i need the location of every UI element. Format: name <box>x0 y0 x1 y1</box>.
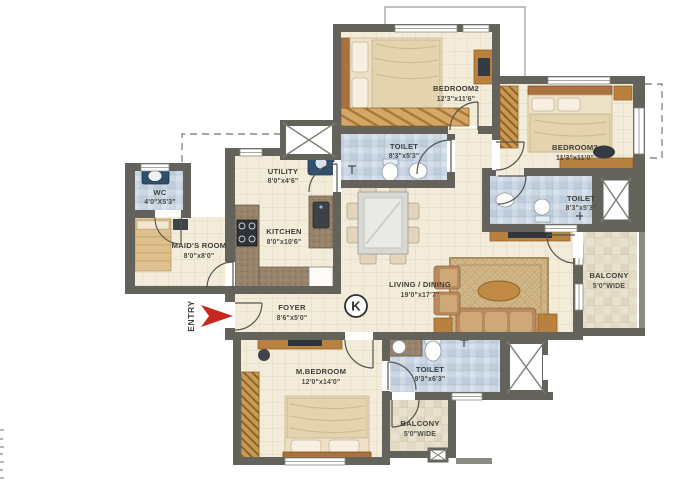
edge-marks <box>0 430 4 478</box>
window <box>240 149 262 156</box>
window <box>463 25 489 32</box>
svg-text:TOILET: TOILET <box>567 194 595 203</box>
window <box>395 25 457 32</box>
foyer-floor <box>235 294 341 332</box>
window <box>285 458 345 465</box>
sofa <box>456 308 536 336</box>
svg-text:12'3"x11'6": 12'3"x11'6" <box>437 96 475 103</box>
compass: K <box>345 295 367 317</box>
shaft-balcony <box>429 449 447 461</box>
svg-text:8'3"x5'3": 8'3"x5'3" <box>566 205 597 212</box>
bedroom2-bed <box>341 38 442 112</box>
kitchen-fridge <box>309 267 333 288</box>
window <box>452 393 482 400</box>
svg-text:5'0"WIDE: 5'0"WIDE <box>593 283 625 290</box>
svg-text:11'3"x11'0": 11'3"x11'0" <box>556 155 594 162</box>
maids-bed <box>135 219 171 271</box>
svg-text:8'0"x8'0": 8'0"x8'0" <box>184 253 215 260</box>
svg-text:9'3"x6'3": 9'3"x6'3" <box>415 376 446 383</box>
master-chair <box>258 349 270 361</box>
svg-text:12'0"x14'0": 12'0"x14'0" <box>302 379 341 386</box>
window <box>634 108 644 154</box>
svg-text:M.BEDROOM: M.BEDROOM <box>296 367 346 376</box>
svg-text:UTILITY: UTILITY <box>268 167 298 176</box>
master-wardrobe <box>241 372 259 458</box>
svg-text:BEDROOM3: BEDROOM3 <box>552 143 598 152</box>
floor-plan-canvas: ENTRY K BEDROOM2 12'3"x11'6" BEDROOM3 11… <box>0 0 700 500</box>
dining-set <box>347 182 419 264</box>
svg-text:BEDROOM2: BEDROOM2 <box>433 84 479 93</box>
shaft-right <box>601 178 631 222</box>
entry-label: ENTRY <box>186 300 196 332</box>
svg-text:8'0"x10'6": 8'0"x10'6" <box>267 239 302 246</box>
bedroom3-wardrobe <box>500 86 518 148</box>
coffee-table <box>478 281 520 301</box>
floor-plan: ENTRY K BEDROOM2 12'3"x11'6" BEDROOM3 11… <box>0 0 700 500</box>
balcony-right-floor <box>583 232 637 328</box>
svg-text:TOILET: TOILET <box>390 142 418 151</box>
bedroom3-nightstand <box>614 86 632 100</box>
svg-text:5'0"WIDE: 5'0"WIDE <box>404 431 436 438</box>
bedroom2-deck-strip <box>341 108 469 126</box>
svg-text:TOILET: TOILET <box>416 365 444 374</box>
svg-text:8'0"x4'6": 8'0"x4'6" <box>268 178 299 185</box>
side-table <box>538 314 557 335</box>
shaft-bottom <box>507 341 550 393</box>
svg-text:LIVING / DINING: LIVING / DINING <box>389 280 451 289</box>
svg-text:8'3"x5'3": 8'3"x5'3" <box>389 153 420 160</box>
svg-text:8'6"x5'0": 8'6"x5'0" <box>277 315 308 322</box>
svg-text:19'0"x17'7": 19'0"x17'7" <box>401 292 440 299</box>
window <box>548 77 610 84</box>
svg-text:4'0"X5'3": 4'0"X5'3" <box>144 199 176 206</box>
compass-letter: K <box>351 299 361 314</box>
svg-text:MAID'S ROOM: MAID'S ROOM <box>172 241 227 250</box>
svg-text:BALCONY: BALCONY <box>400 419 439 428</box>
svg-text:WC: WC <box>153 188 166 197</box>
shaft-top <box>283 123 335 157</box>
svg-text:FOYER: FOYER <box>278 303 306 312</box>
window <box>141 164 169 171</box>
bedroom2-dresser-top <box>478 58 490 76</box>
svg-text:BALCONY: BALCONY <box>589 271 628 280</box>
svg-text:KITCHEN: KITCHEN <box>266 227 302 236</box>
window <box>575 284 583 310</box>
master-bed <box>283 396 371 458</box>
window <box>545 225 577 232</box>
